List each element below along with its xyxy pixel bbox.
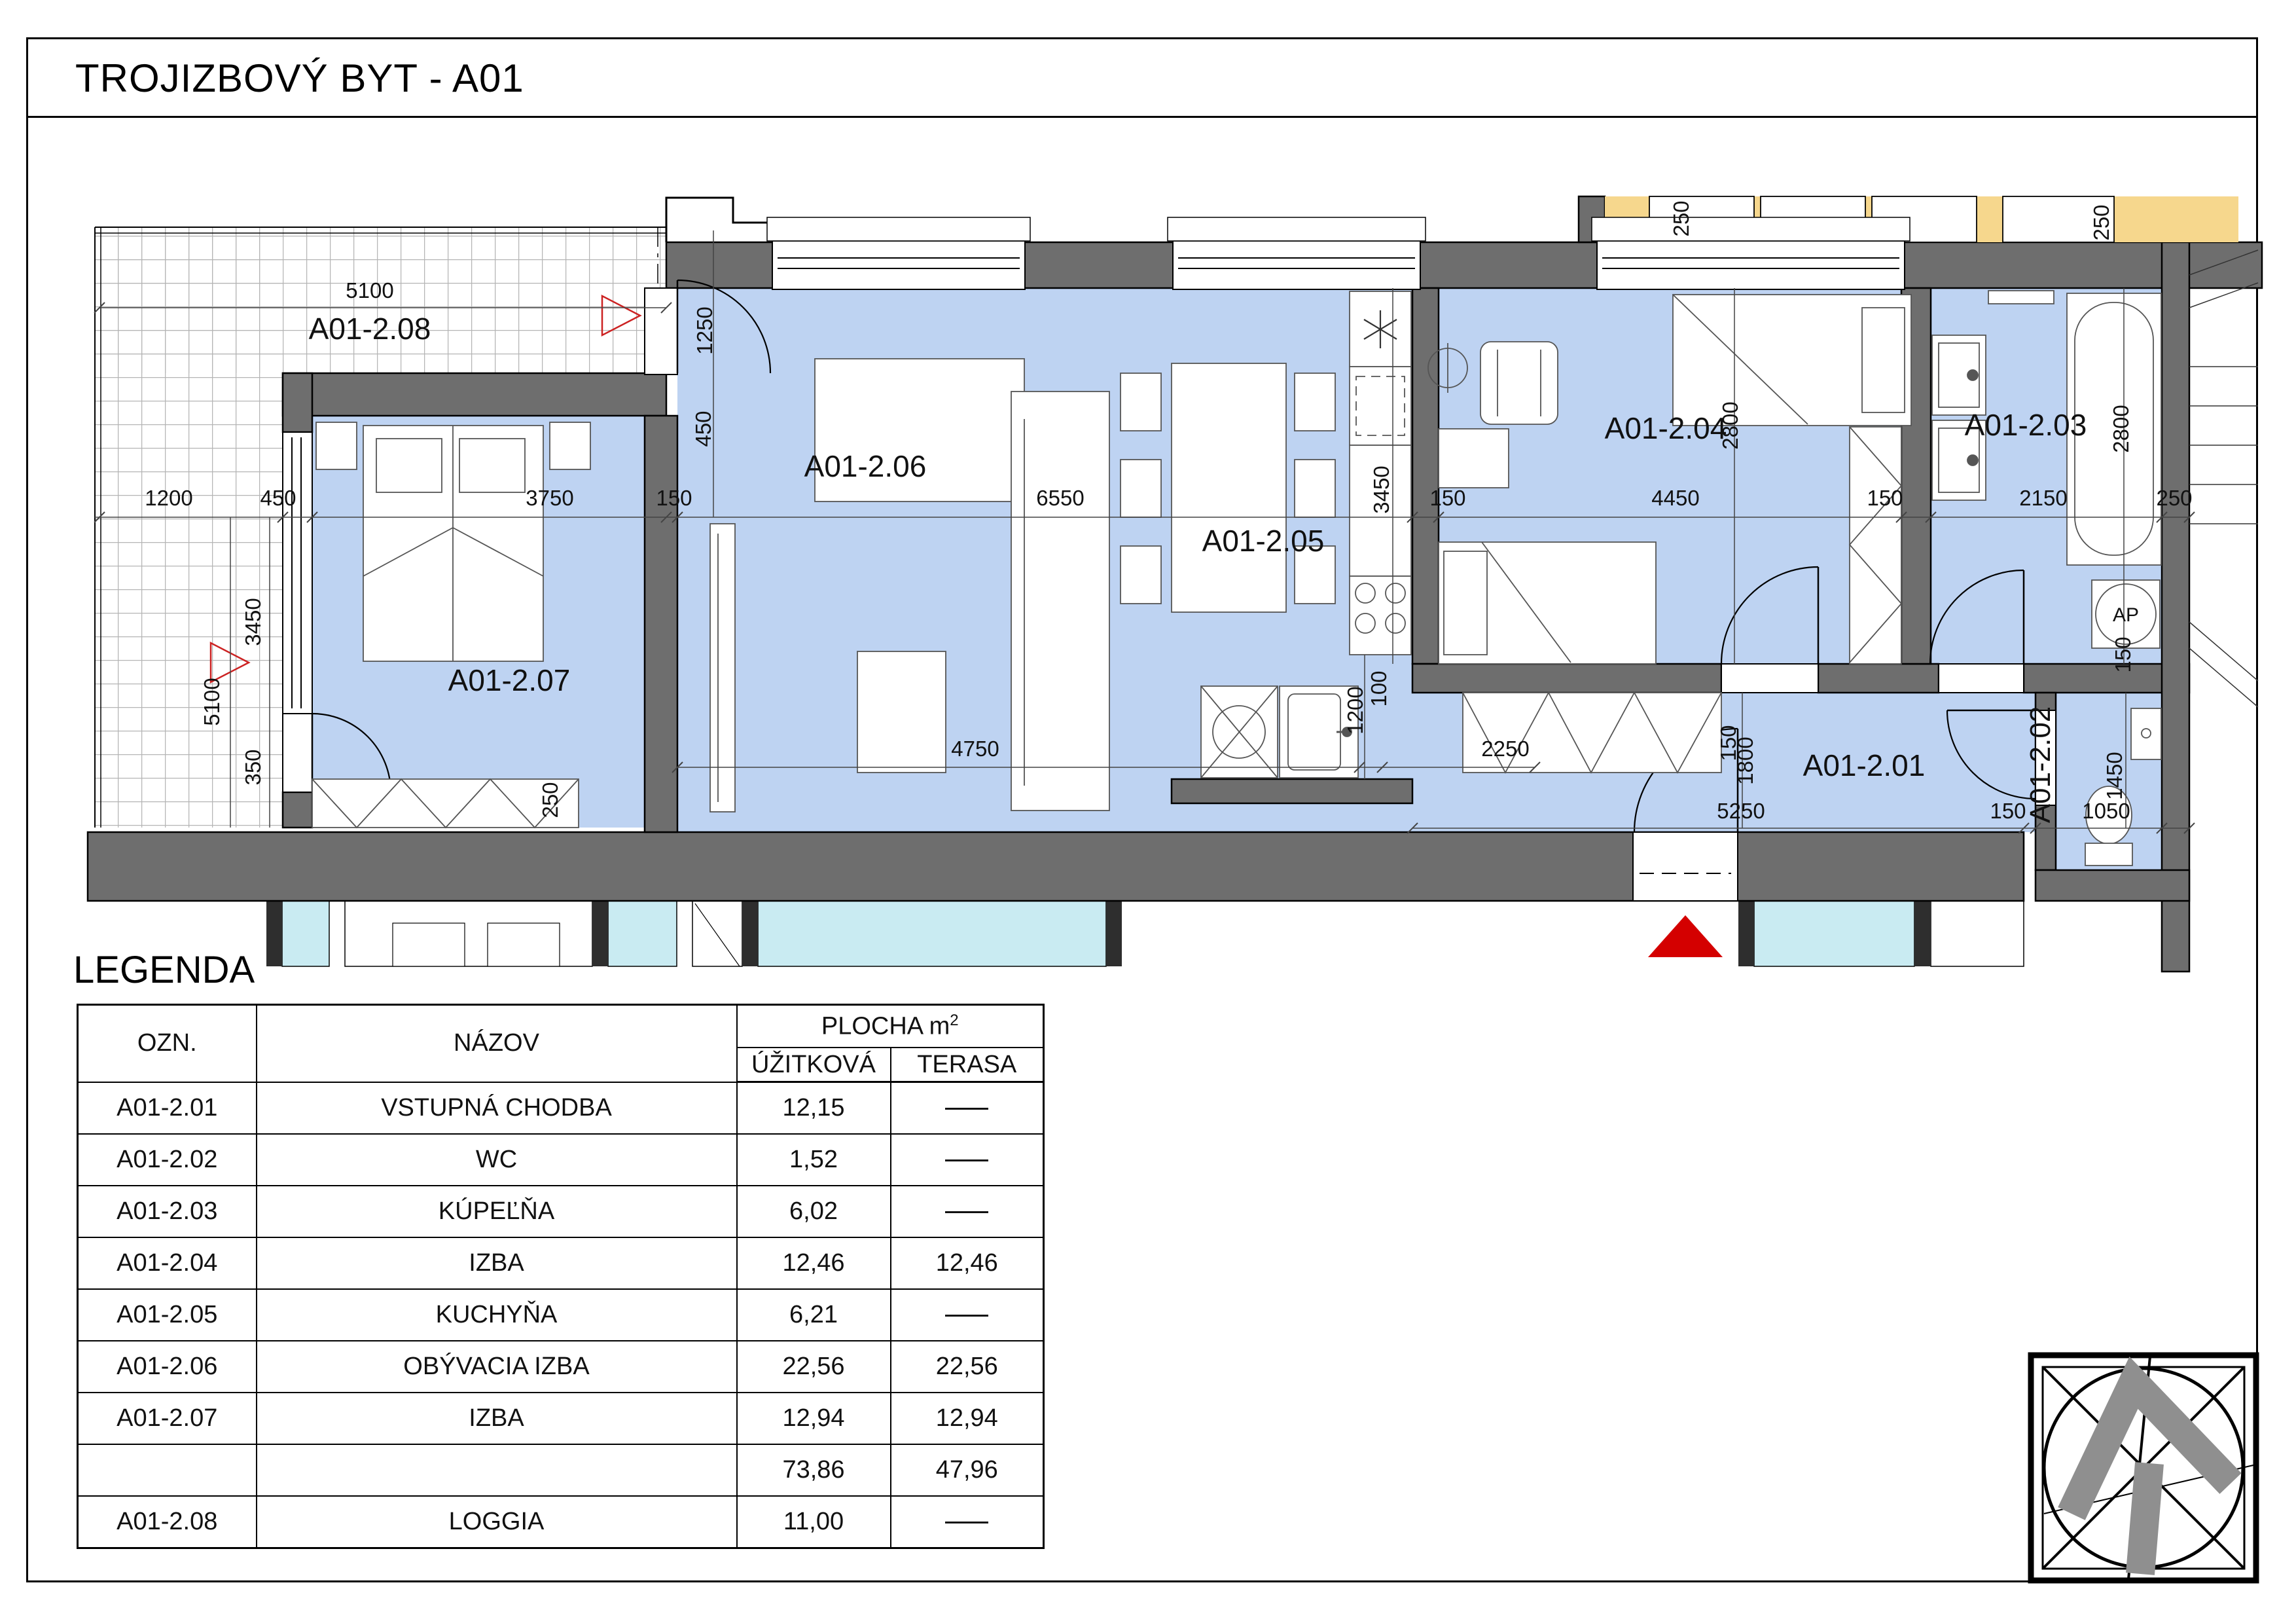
dim-label: 1050 <box>2082 799 2130 823</box>
dim-label: 3450 <box>1369 465 1393 513</box>
dim-label: 1200 <box>1343 686 1367 734</box>
wall-hall-top-b <box>1818 664 1939 693</box>
cell-nazov: IZBA <box>257 1393 737 1444</box>
cell-terasa: 12,46 <box>891 1237 1044 1289</box>
cell-uzitkova: 6,21 <box>737 1289 891 1341</box>
legend-row: A01-2.08 LOGGIA 11,00 <box>78 1496 1044 1548</box>
plocha-sup: 2 <box>950 1012 958 1029</box>
wall-kitchen-stub <box>1172 779 1412 803</box>
col-header-ozn: OZN. <box>78 1005 257 1082</box>
wall-neighbor-corner <box>666 198 771 242</box>
dim-label: 450 <box>691 410 715 447</box>
room-label-bath: A01-2.03 <box>1965 408 2087 442</box>
window-1 <box>767 217 1030 289</box>
dim-label: 3450 <box>241 598 265 646</box>
dim-label: 1250 <box>692 306 717 354</box>
legend-row: A01-2.07 IZBA 12,94 12,94 <box>78 1393 1044 1444</box>
cell-uzitkova: 1,52 <box>737 1134 891 1186</box>
legend-total-row: 73,86 47,96 <box>78 1444 1044 1496</box>
wall-wc-bottom <box>2036 870 2189 901</box>
dash-line <box>945 1522 988 1523</box>
cell-nazov-empty <box>257 1444 737 1496</box>
dim-label: 100 <box>1367 670 1391 706</box>
lower-flat-strip <box>266 901 2024 966</box>
room-label-hall: A01-2.01 <box>1803 748 1926 782</box>
cell-ozn: A01-2.01 <box>78 1082 257 1135</box>
cell-terasa: 12,94 <box>891 1393 1044 1444</box>
dim-label: 2800 <box>2109 405 2133 452</box>
coffee-table <box>857 651 946 773</box>
cell-nazov: KUCHYŇA <box>257 1289 737 1341</box>
wall-izba07-left-a <box>283 373 312 432</box>
entrance-arrow <box>1648 915 1723 957</box>
washer-ap-label: AP <box>2113 604 2139 626</box>
dim-label: 150 <box>656 486 692 510</box>
cell-ozn-empty <box>78 1444 257 1496</box>
cell-ozn: A01-2.03 <box>78 1186 257 1237</box>
cell-ozn: A01-2.08 <box>78 1496 257 1548</box>
dim-label: 5100 <box>346 278 393 302</box>
cell-terasa <box>891 1496 1044 1548</box>
sofa-chaise <box>1011 392 1109 811</box>
dim-label: 4450 <box>1651 486 1699 510</box>
legend-row: A01-2.04 IZBA 12,46 12,46 <box>78 1237 1044 1289</box>
dim-label: 350 <box>241 749 265 785</box>
window-2 <box>1168 217 1426 289</box>
dim-label: 2250 <box>1481 737 1529 761</box>
window-3 <box>1592 217 1910 289</box>
dim-label: 150 <box>1867 486 1903 510</box>
wall-hall-top-a <box>1412 664 1721 693</box>
desk <box>1439 429 1509 488</box>
tv-bench <box>710 524 735 812</box>
wall-izba07-top <box>283 373 666 416</box>
cell-terasa <box>891 1289 1044 1341</box>
dim-label: 250 <box>2089 204 2113 240</box>
cell-uzitkova: 12,94 <box>737 1393 891 1444</box>
col-header-nazov: NÁZOV <box>257 1005 737 1082</box>
legend-table: OZN. NÁZOV PLOCHA m2 ÚŽITKOVÁ TERASA A01… <box>77 1004 1045 1549</box>
dim-label: 250 <box>2156 486 2192 510</box>
dash-line <box>945 1159 988 1161</box>
legend-row: A01-2.01 VSTUPNÁ CHODBA 12,15 <box>78 1082 1044 1135</box>
dim-label: 150 <box>1990 799 2026 823</box>
room-label-loggia: A01-2.08 <box>309 312 431 346</box>
room-label-wc: A01-2.02 <box>2024 706 2056 824</box>
cell-total-uzitkova: 73,86 <box>737 1444 891 1496</box>
dim-label: 4750 <box>951 737 999 761</box>
legend-row: A01-2.06 OBÝVACIA IZBA 22,56 22,56 <box>78 1341 1044 1393</box>
room-label-izba07: A01-2.07 <box>448 663 571 697</box>
cell-nazov: LOGGIA <box>257 1496 737 1548</box>
wall-living-left <box>645 416 677 832</box>
dim-label: 2150 <box>2019 486 2067 510</box>
legend-heading: LEGENDA <box>73 948 255 992</box>
cell-terasa <box>891 1134 1044 1186</box>
dim-label: 1450 <box>2102 752 2126 799</box>
col-header-uzitkova: ÚŽITKOVÁ <box>737 1048 891 1082</box>
cell-nazov: IZBA <box>257 1237 737 1289</box>
dining-table <box>1172 363 1286 612</box>
cell-ozn: A01-2.07 <box>78 1393 257 1444</box>
dim-label: 150 <box>1429 486 1465 510</box>
legend-row: A01-2.05 KUCHYŇA 6,21 <box>78 1289 1044 1341</box>
cell-ozn: A01-2.05 <box>78 1289 257 1341</box>
room-label-izba04: A01-2.04 <box>1605 411 1727 445</box>
cell-nazov: WC <box>257 1134 737 1186</box>
windows-top <box>767 217 1910 289</box>
architect-logo <box>2031 1355 2256 1580</box>
cell-terasa: 22,56 <box>891 1341 1044 1393</box>
cell-uzitkova: 12,46 <box>737 1237 891 1289</box>
dim-label: 450 <box>260 486 296 510</box>
col-header-plocha: PLOCHA m2 <box>737 1005 1044 1048</box>
wall-right <box>2162 242 2189 972</box>
legend-row: A01-2.03 KÚPEĽŇA 6,02 <box>78 1186 1044 1237</box>
cell-uzitkova: 6,02 <box>737 1186 891 1237</box>
wc-sink <box>2131 708 2161 759</box>
dash-line <box>945 1211 988 1213</box>
dim-label: 250 <box>1669 200 1693 236</box>
armchair <box>1480 342 1558 424</box>
cell-total-terasa: 47,96 <box>891 1444 1044 1496</box>
cell-terasa <box>891 1186 1044 1237</box>
dim-label: 250 <box>538 782 562 818</box>
cell-nazov: KÚPEĽŇA <box>257 1186 737 1237</box>
wall-kitchen-right <box>1412 288 1439 664</box>
dim-label: 5100 <box>200 678 224 725</box>
cell-ozn: A01-2.04 <box>78 1237 257 1289</box>
dash-line <box>945 1315 988 1317</box>
dim-label: 150 <box>2111 636 2135 672</box>
col-header-terasa: TERASA <box>891 1048 1044 1082</box>
room-label-living: A01-2.06 <box>804 449 927 483</box>
cell-uzitkova: 11,00 <box>737 1496 891 1548</box>
cell-uzitkova: 22,56 <box>737 1341 891 1393</box>
wall-izba07-left-b <box>283 792 312 828</box>
drawing-sheet: TROJIZBOVÝ BYT - A01 <box>0 0 2296 1623</box>
cell-uzitkova: 12,15 <box>737 1082 891 1135</box>
dim-label: 3750 <box>526 486 573 510</box>
dim-label: 1200 <box>145 486 192 510</box>
legend-row: A01-2.02 WC 1,52 <box>78 1134 1044 1186</box>
dash-line <box>945 1108 988 1110</box>
plocha-label: PLOCHA m <box>821 1013 950 1040</box>
dim-label: 5250 <box>1717 799 1765 823</box>
legend-header-row: OZN. NÁZOV PLOCHA m2 <box>78 1005 1044 1048</box>
cell-nazov: OBÝVACIA IZBA <box>257 1341 737 1393</box>
wardrobe-izba04 <box>1850 427 1901 664</box>
staircase-hatch <box>2189 250 2258 707</box>
dim-label: 150 <box>1716 725 1740 761</box>
cell-nazov: VSTUPNÁ CHODBA <box>257 1082 737 1135</box>
room-label-kitchen: A01-2.05 <box>1202 524 1325 558</box>
cell-terasa <box>891 1082 1044 1135</box>
cell-ozn: A01-2.02 <box>78 1134 257 1186</box>
cell-ozn: A01-2.06 <box>78 1341 257 1393</box>
dim-label: 6550 <box>1036 486 1084 510</box>
